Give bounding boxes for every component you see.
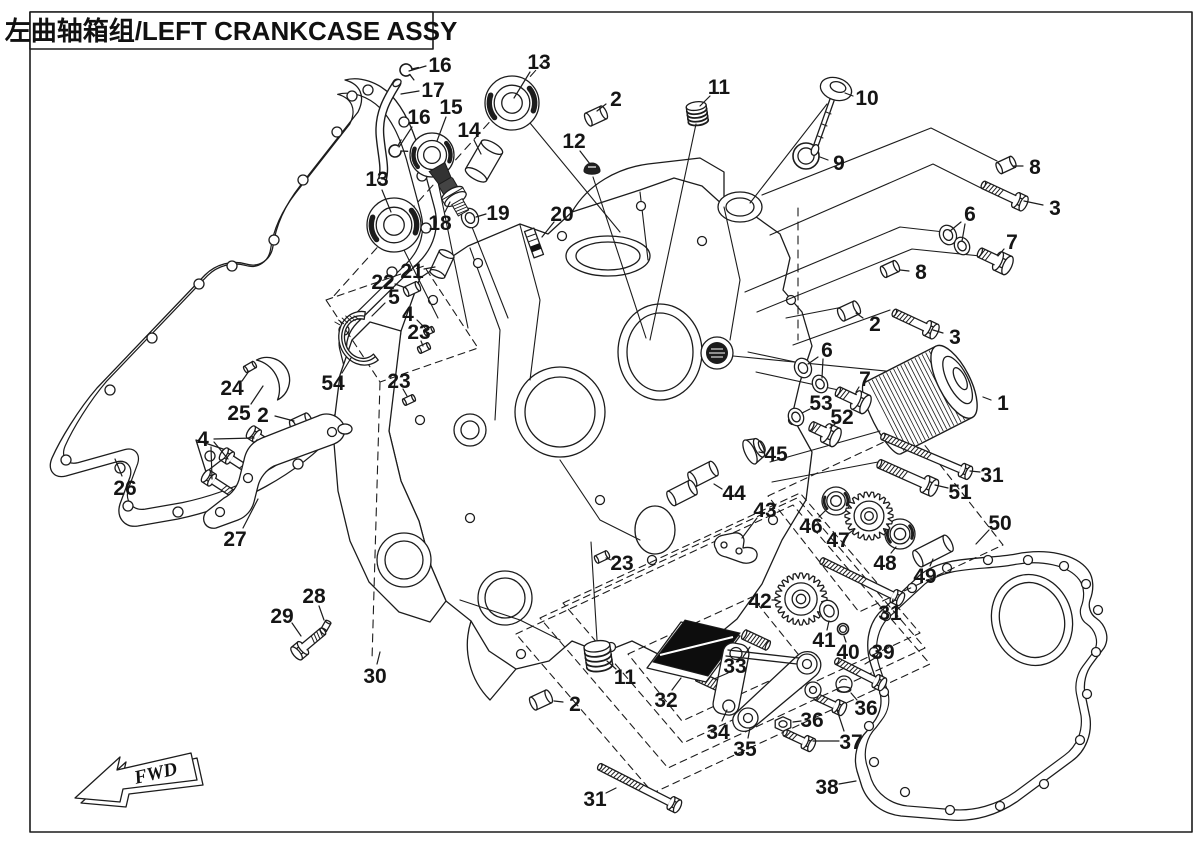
part-pin: [911, 534, 956, 569]
callout-leader-31: [606, 788, 616, 793]
part-nut: [775, 717, 791, 731]
part-callout-16: 16: [407, 106, 430, 129]
part-callout-47: 47: [826, 529, 849, 552]
part-pin: [583, 105, 609, 127]
part-pin: [243, 361, 257, 373]
part-callout-13: 13: [365, 168, 388, 191]
callout-leader-17: [401, 91, 419, 94]
part-ball-nut: [836, 676, 852, 692]
part-callout-30: 30: [363, 665, 386, 688]
part-threaded-plug: [583, 639, 613, 673]
part-bolt: [978, 177, 1030, 212]
part-callout-8: 8: [915, 261, 927, 284]
part-callout-51: 51: [948, 481, 972, 504]
part-callout-53: 53: [809, 392, 832, 415]
part-callout-2: 2: [569, 693, 581, 716]
part-callout-2: 2: [257, 404, 269, 427]
part-callout-45: 45: [764, 443, 788, 466]
part-callout-32: 32: [654, 689, 677, 712]
part-callout-34: 34: [706, 721, 730, 744]
alignment-line: [770, 164, 983, 235]
part-callout-7: 7: [859, 368, 871, 391]
part-callout-23: 23: [387, 370, 410, 393]
part-callout-41: 41: [812, 629, 836, 652]
part-callout-29: 29: [270, 605, 293, 628]
part-callout-36: 36: [800, 709, 823, 732]
callout-leader-5: [372, 303, 385, 316]
part-callout-54: 54: [321, 372, 345, 395]
part-bearing: [367, 198, 421, 252]
part-callout-38: 38: [815, 776, 839, 799]
page-title: 左曲轴箱组/LEFT CRANKCASE ASSY: [5, 16, 458, 46]
part-gear: [775, 573, 827, 625]
fwd-label: FWD: [131, 758, 179, 788]
part-callout-11: 11: [708, 76, 731, 99]
callout-leader-9: [820, 157, 828, 160]
part-callout-5: 5: [388, 286, 400, 309]
part-callout-3: 3: [949, 326, 961, 349]
part-callout-10: 10: [855, 87, 878, 110]
part-callout-19: 19: [486, 202, 509, 225]
part-callout-18: 18: [428, 212, 452, 235]
part-gear: [845, 492, 893, 540]
callout-leader-38: [839, 781, 856, 784]
part-callout-26: 26: [113, 477, 136, 500]
part-callout-52: 52: [830, 406, 853, 429]
part-callout-2: 2: [869, 313, 881, 336]
part-bolt: [595, 760, 683, 814]
callout-leader-1: [983, 397, 991, 400]
part-callout-25: 25: [227, 402, 251, 425]
callout-leader-2: [275, 416, 294, 421]
part-callout-16: 16: [428, 54, 451, 77]
part-bracket-27: [204, 414, 352, 528]
callout-leader-2: [554, 701, 563, 702]
part-callout-23: 23: [610, 552, 633, 575]
part-callout-44: 44: [722, 482, 746, 505]
callout-leader-16: [399, 127, 412, 147]
part-callout-28: 28: [302, 585, 326, 608]
part-bolt: [289, 624, 330, 662]
part-hose-clamp: [398, 62, 418, 80]
part-callout-46: 46: [799, 515, 822, 538]
part-callout-8: 8: [1029, 156, 1041, 179]
callout-leader-25: [251, 386, 263, 404]
callout-leader-28: [319, 606, 324, 620]
callout-leader-6: [808, 357, 818, 364]
part-callout-12: 12: [562, 130, 585, 153]
part-callout-42: 42: [748, 590, 771, 613]
part-callout-20: 20: [550, 203, 573, 226]
part-callout-23: 23: [407, 321, 430, 344]
part-callout-15: 15: [439, 96, 463, 119]
fwd-direction-marker: FWD: [75, 753, 203, 807]
part-callout-49: 49: [913, 565, 936, 588]
part-callout-9: 9: [833, 152, 845, 175]
part-callout-40: 40: [836, 641, 859, 664]
part-callout-48: 48: [873, 552, 897, 575]
part-callout-7: 7: [1006, 231, 1018, 254]
part-callout-21: 21: [400, 260, 424, 283]
part-callout-31: 31: [583, 788, 607, 811]
part-callout-27: 27: [223, 528, 246, 551]
part-hose-clamp: [387, 140, 408, 160]
part-callout-2: 2: [610, 88, 622, 111]
part-crescent-plate: [256, 352, 294, 402]
part-callout-31: 31: [980, 464, 1004, 487]
part-dipstick-10: [810, 74, 855, 157]
part-callout-11: 11: [614, 666, 637, 689]
parts-diagram-page: 1617131516142121110983671318192021225423…: [0, 0, 1201, 846]
exploded-parts-diagram: 1617131516142121110983671318192021225423…: [0, 0, 1201, 846]
part-callout-3: 3: [1049, 197, 1061, 220]
part-pin: [528, 689, 554, 711]
part-callout-33: 33: [723, 655, 746, 678]
part-callout-36: 36: [854, 697, 877, 720]
part-pin: [995, 155, 1018, 174]
part-pin: [836, 300, 862, 322]
part-cap: [584, 163, 600, 174]
part-callout-39: 39: [871, 641, 894, 664]
part-callout-6: 6: [821, 339, 833, 362]
callout-leader-30: [377, 652, 380, 664]
part-callout-1: 1: [997, 392, 1009, 415]
part-callout-50: 50: [988, 512, 1011, 535]
part-callout-6: 6: [964, 203, 976, 226]
part-callout-35: 35: [733, 738, 757, 761]
part-pin: [879, 260, 901, 279]
part-callout-31: 31: [878, 602, 902, 625]
part-bearing: [485, 76, 539, 130]
part-callout-13: 13: [527, 51, 550, 74]
part-callout-43: 43: [753, 499, 776, 522]
part-callout-4: 4: [197, 428, 209, 451]
part-callout-37: 37: [839, 731, 862, 754]
part-threaded-plug: [686, 101, 709, 127]
part-bolt: [889, 305, 941, 340]
part-oil-filter-1: [856, 339, 987, 458]
part-oring: [838, 624, 849, 635]
part-callout-14: 14: [457, 119, 481, 142]
callout-leader-8: [900, 270, 909, 271]
part-callout-24: 24: [220, 377, 244, 400]
callout-leader-50: [976, 530, 989, 544]
